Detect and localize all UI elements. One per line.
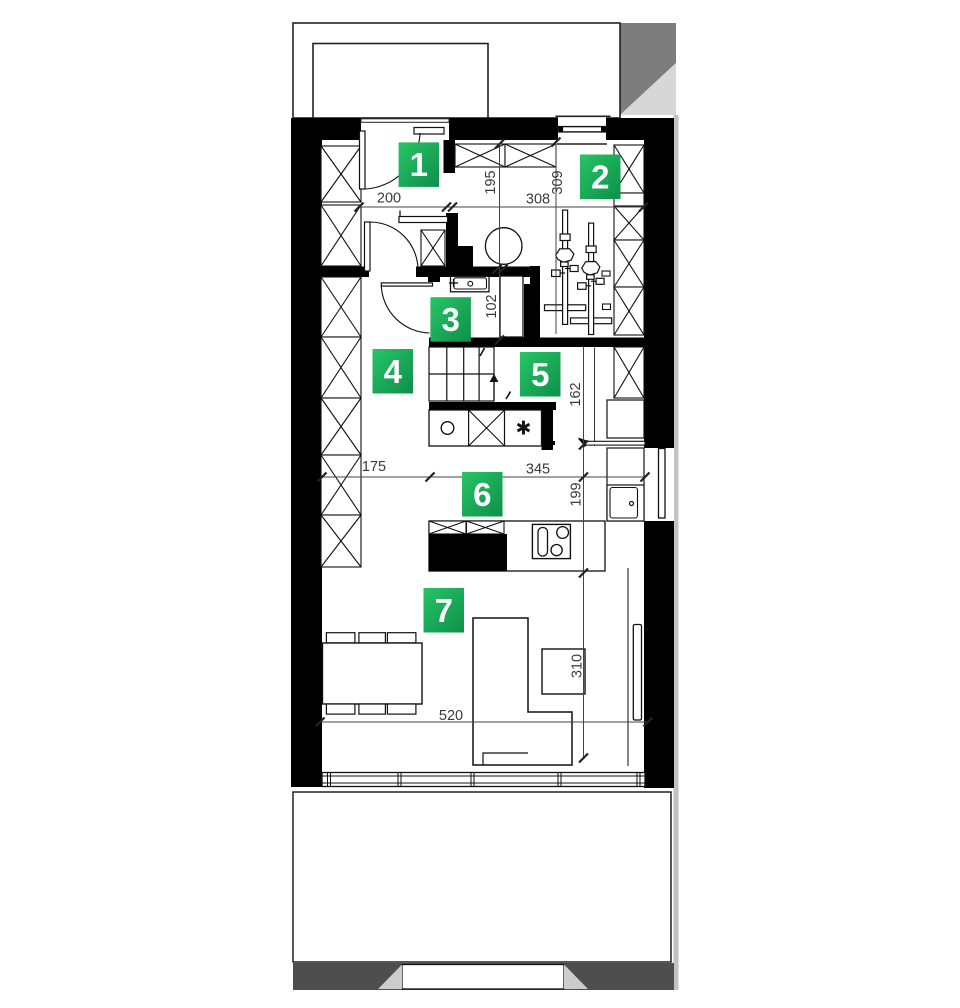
svg-text:175: 175 <box>362 459 386 475</box>
svg-text:308: 308 <box>526 192 550 208</box>
svg-text:7: 7 <box>435 592 453 629</box>
svg-text:310: 310 <box>570 654 586 678</box>
svg-text:520: 520 <box>439 708 463 724</box>
svg-text:4: 4 <box>384 353 403 390</box>
svg-text:3: 3 <box>441 301 459 338</box>
svg-text:200: 200 <box>377 191 401 207</box>
svg-text:309: 309 <box>550 170 566 194</box>
svg-text:199: 199 <box>569 482 585 506</box>
svg-text:5: 5 <box>531 356 549 393</box>
svg-text:✱: ✱ <box>515 419 531 440</box>
svg-text:345: 345 <box>526 462 550 478</box>
svg-text:6: 6 <box>473 476 491 513</box>
svg-text:195: 195 <box>483 170 499 194</box>
svg-text:1: 1 <box>410 146 428 183</box>
svg-text:102: 102 <box>484 294 500 318</box>
svg-text:162: 162 <box>568 382 584 406</box>
svg-text:2: 2 <box>591 158 609 195</box>
